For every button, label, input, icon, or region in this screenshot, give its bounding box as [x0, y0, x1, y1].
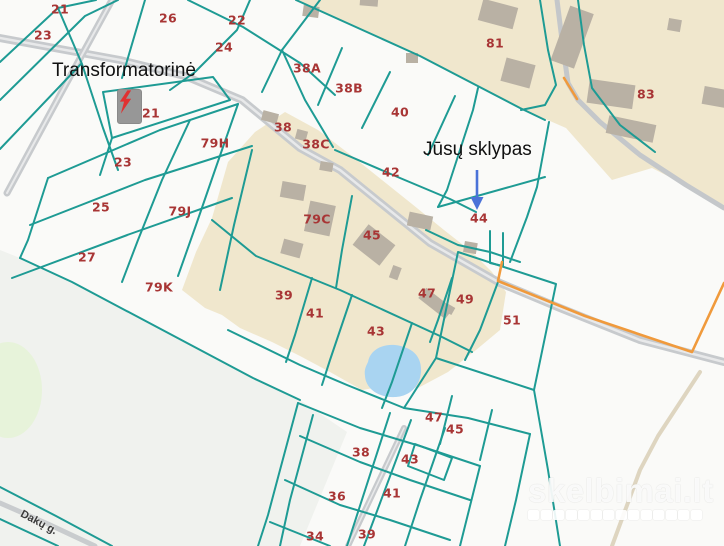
map-canvas[interactable]: 212622242338A38B408183213838C79H23422579…: [0, 0, 724, 546]
watermark-square: [528, 510, 539, 520]
watermark-square: [541, 510, 552, 520]
watermark: skelbimai.lt: [528, 474, 703, 520]
your-plot-arrow-icon: [471, 170, 484, 210]
transformer-icon: [117, 89, 142, 124]
your-plot-label: Jūsų sklypas: [423, 139, 532, 161]
watermark-square: [666, 510, 677, 520]
watermark-square: [578, 510, 589, 520]
watermark-square: [678, 510, 689, 520]
watermark-square: [616, 510, 627, 520]
pond: [365, 345, 421, 397]
watermark-square: [591, 510, 602, 520]
watermark-square: [628, 510, 639, 520]
watermark-square: [553, 510, 564, 520]
watermark-squares: [528, 510, 703, 520]
watermark-square: [566, 510, 577, 520]
watermark-square: [691, 510, 702, 520]
watermark-square: [653, 510, 664, 520]
transformer-label: Transformatorinė: [52, 60, 196, 82]
watermark-square: [641, 510, 652, 520]
lightning-bolt-icon: [118, 90, 133, 115]
watermark-text: skelbimai.lt: [528, 474, 703, 507]
watermark-square: [603, 510, 614, 520]
